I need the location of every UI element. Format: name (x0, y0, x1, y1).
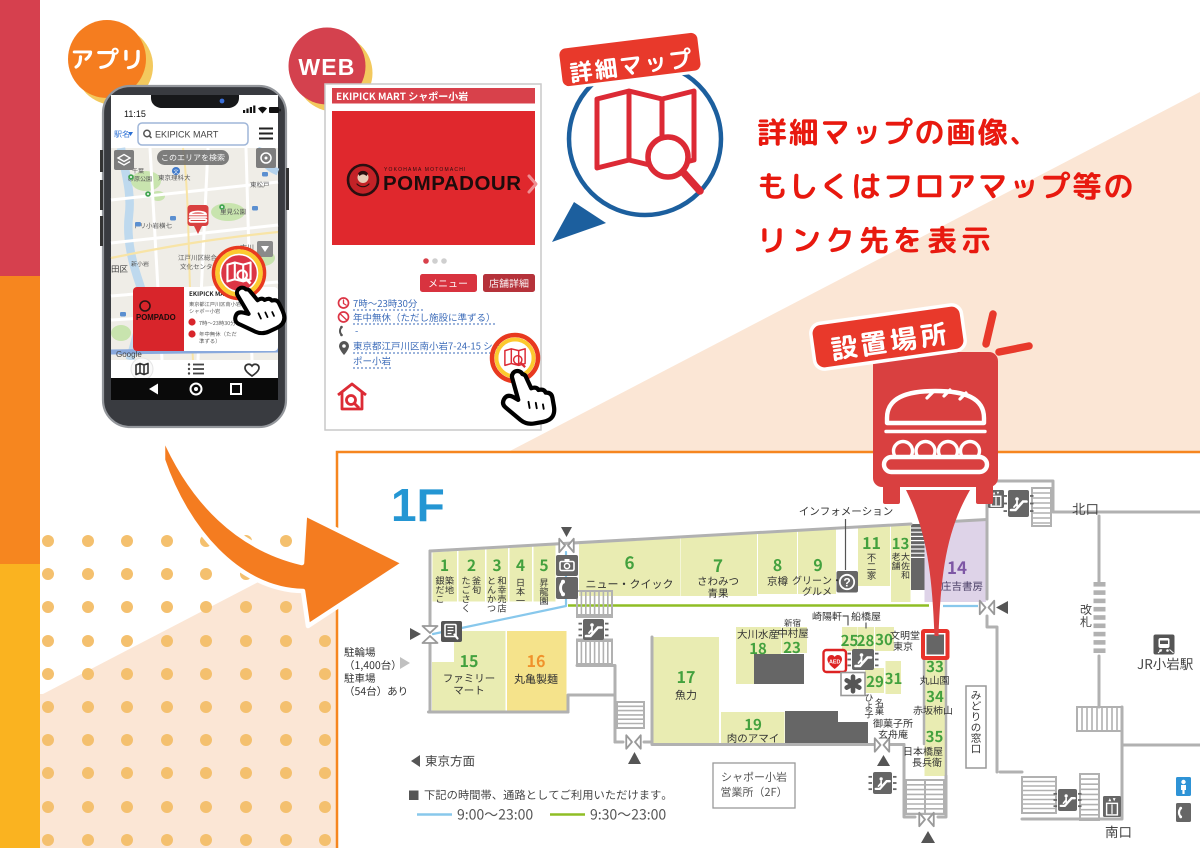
svg-text:WEB: WEB (298, 54, 355, 80)
svg-text:POMPADO: POMPADO (136, 313, 176, 322)
svg-text:POMPADOUR: POMPADOUR (383, 172, 522, 195)
svg-text:AED: AED (829, 660, 840, 666)
svg-text:11:15: 11:15 (124, 109, 146, 119)
svg-text:1F: 1F (391, 479, 445, 531)
svg-text:Google: Google (116, 350, 142, 359)
svg-text:?: ? (843, 576, 850, 590)
svg-text:EKIPICK MART: EKIPICK MART (155, 130, 219, 140)
